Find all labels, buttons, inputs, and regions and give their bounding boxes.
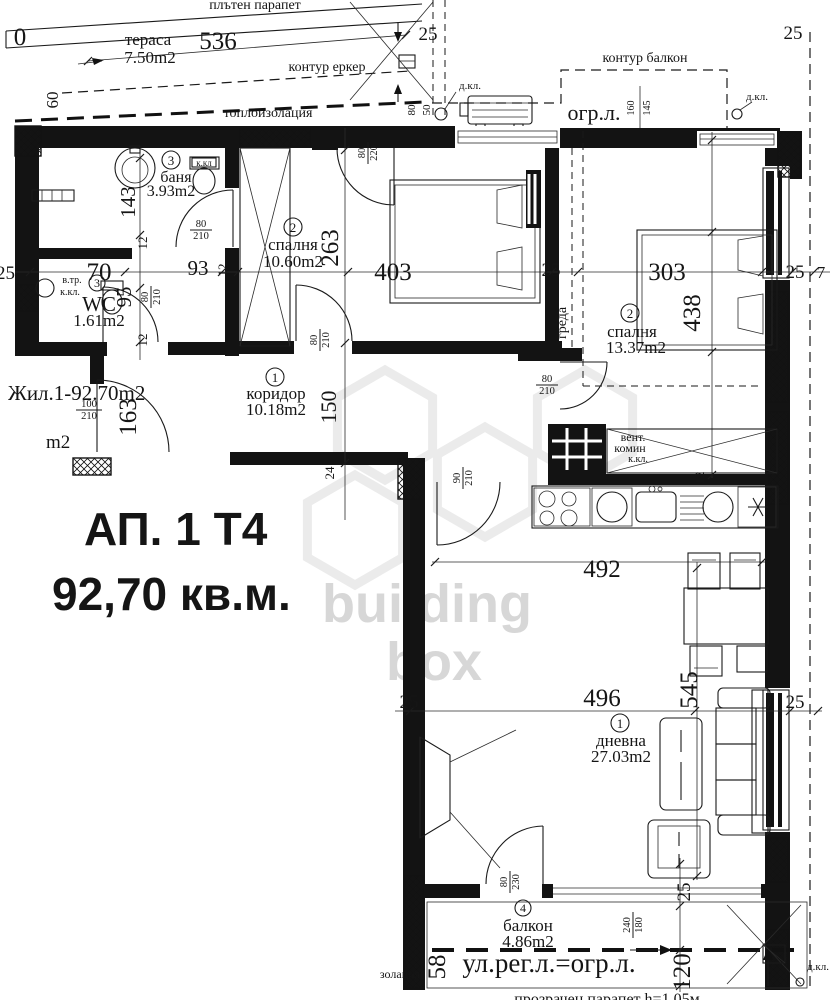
door-spec-bath: 80210 — [190, 219, 212, 242]
apartment-area-title: 92,70 кв.м. — [52, 568, 291, 620]
svg-text:80: 80 — [309, 335, 320, 346]
dim-25-balcony: 25 — [674, 883, 695, 902]
street-line-label: ул.рег.л.=огр.л. — [462, 948, 635, 978]
dim-496: 496 — [583, 685, 621, 712]
bath-area: 3.93m2 — [147, 183, 195, 200]
svg-text:80: 80 — [357, 148, 368, 159]
dim-25-living-left: 25 — [400, 692, 419, 713]
dim-492: 492 — [583, 556, 621, 583]
terrace-area: 7.50m2 — [124, 48, 175, 67]
stray-m2: m2 — [46, 432, 70, 453]
svg-text:210: 210 — [81, 411, 97, 422]
dkl-label-1: д.кл. — [459, 80, 481, 92]
dim-12-d: 12 — [692, 472, 707, 485]
floor-plan-page: building box — [0, 0, 836, 1000]
dim-60: 60 — [43, 92, 62, 109]
svg-text:180: 180 — [634, 917, 645, 933]
furniture-living — [420, 688, 770, 878]
dim-50-top: 50 — [421, 104, 433, 116]
svg-text:240: 240 — [622, 917, 633, 933]
dim-143: 143 — [116, 186, 140, 218]
dim-403: 403 — [374, 259, 412, 286]
bedroom2-area: 13.37m2 — [606, 338, 666, 357]
svg-text:к.кл: к.кл — [196, 158, 212, 168]
watermark-text-1: building — [322, 574, 532, 634]
dim-150: 150 — [316, 391, 341, 424]
svg-text:2: 2 — [290, 220, 297, 235]
bay-contour-label: контур еркер — [289, 60, 366, 75]
dim-7: 7 — [817, 263, 826, 282]
parapet-bottom-label: прозрачен парапет h=1.05м — [514, 991, 699, 1000]
svg-text:1: 1 — [617, 716, 624, 731]
dim-25-left-edge: 25 — [0, 263, 15, 284]
dim-12-c: 12 — [215, 264, 230, 277]
dim-145: 145 — [642, 101, 653, 116]
kkl-vent-label: к.кл. — [628, 454, 648, 465]
dim-545: 545 — [676, 671, 703, 709]
dkl-label-3: д.кл. — [807, 961, 829, 973]
ac-unit — [460, 96, 532, 129]
svg-text:80: 80 — [542, 374, 553, 385]
vent-label-2: комин — [614, 441, 646, 455]
svg-text:3: 3 — [168, 153, 175, 168]
wc-area: 1.61m2 — [73, 311, 124, 330]
door-spec-bedroom2: 80210 — [536, 374, 558, 397]
vtr-label: в.тр. — [62, 275, 81, 286]
svg-text:220: 220 — [369, 145, 380, 161]
dim-24: 24 — [322, 466, 337, 480]
svg-text:100: 100 — [81, 399, 97, 410]
corridor-area: 10.18m2 — [246, 400, 306, 419]
dim-303: 303 — [648, 259, 686, 286]
kkl-wc-label: к.кл. — [60, 287, 80, 298]
svg-text:210: 210 — [539, 386, 555, 397]
apartment-title: АП. 1 Т4 — [84, 503, 268, 555]
svg-text:210: 210 — [464, 470, 475, 486]
dim-12-a: 12 — [135, 237, 150, 250]
svg-text:80: 80 — [196, 219, 207, 230]
dim-25-top-center: 25 — [419, 24, 438, 45]
svg-text:90: 90 — [452, 473, 463, 484]
svg-text:3: 3 — [94, 276, 100, 290]
svg-text:230: 230 — [511, 874, 522, 890]
balcony-contour-label: контур балкон — [602, 51, 688, 66]
dim-160: 160 — [626, 101, 637, 116]
svg-text:210: 210 — [193, 231, 209, 242]
svg-text:210: 210 — [321, 332, 332, 348]
svg-text:4: 4 — [520, 901, 526, 915]
svg-text:2: 2 — [627, 306, 634, 321]
parapet-top-label: плътен парапет — [209, 0, 301, 13]
armchair — [648, 820, 710, 878]
svg-text:1: 1 — [272, 370, 279, 385]
dim-438: 438 — [679, 294, 706, 332]
living-area: 27.03m2 — [591, 747, 651, 766]
bedroom2-number: 2 — [621, 304, 639, 322]
watermark-text-2: box — [386, 632, 482, 692]
dim-163: 163 — [115, 398, 142, 436]
floor-plan-svg: building box — [0, 0, 836, 1000]
watermark-logo: building box — [307, 370, 632, 692]
terrace-name: тераса — [125, 30, 172, 49]
dim-80-top: 80 — [406, 104, 418, 116]
insulation-bottom-label: золация — [380, 967, 421, 981]
bedroom1-number: 2 — [284, 218, 302, 236]
dim-25-top-right: 25 — [784, 23, 803, 44]
dim-25-living-right: 25 — [786, 692, 805, 713]
svg-text:80: 80 — [140, 292, 151, 303]
dim-25-bedroom2: 25 — [786, 262, 805, 283]
ogr-l-label: огр.л. — [567, 100, 620, 125]
dim-0: 0 — [14, 24, 27, 51]
dim-263: 263 — [317, 229, 344, 267]
dkl-label-2: д.кл. — [746, 91, 768, 103]
bedroom1-area: 10.60m2 — [263, 252, 323, 271]
dim-93: 93 — [188, 256, 209, 280]
living-number: 1 — [611, 714, 629, 732]
svg-text:210: 210 — [152, 289, 163, 305]
balcony-number: 4 — [515, 900, 531, 916]
svg-text:80: 80 — [499, 877, 510, 888]
dim-25-bedroom1: 25 — [542, 260, 561, 281]
dim-120: 120 — [669, 953, 696, 991]
dim-536: 536 — [199, 28, 237, 55]
dim-58: 58 — [424, 955, 451, 980]
greda-label: греда — [555, 306, 570, 339]
dim-12-b: 12 — [135, 334, 150, 347]
window-spec-balcony: 240180 — [622, 912, 645, 938]
bath-number: 3 — [162, 151, 180, 169]
door-spec-kitchen: 90210 — [452, 467, 475, 489]
terrace-linework — [6, 2, 433, 121]
furniture-kitchen — [532, 486, 778, 528]
insulation-top-label: топлоизолация — [224, 106, 313, 121]
sofa — [716, 688, 770, 835]
